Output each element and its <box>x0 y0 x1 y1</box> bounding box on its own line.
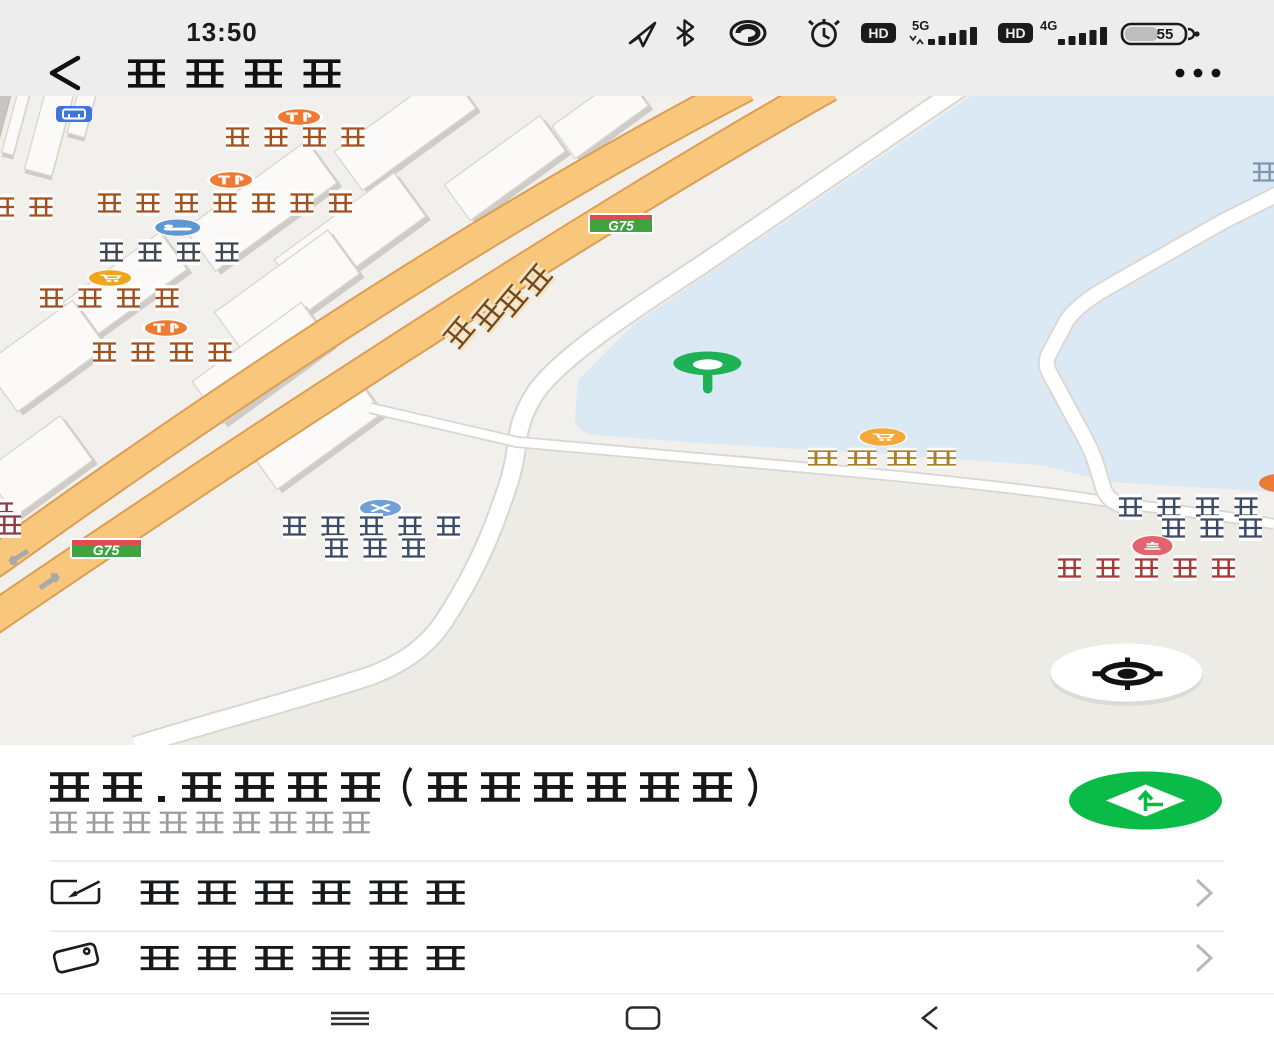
svg-text:4G: 4G <box>1040 18 1057 33</box>
svg-text:HD: HD <box>1005 25 1025 41</box>
svg-text:G75: G75 <box>93 542 120 558</box>
svg-text:13:50: 13:50 <box>186 17 258 47</box>
svg-text:5G: 5G <box>912 18 929 33</box>
svg-text:55: 55 <box>1157 26 1174 43</box>
svg-text:G75: G75 <box>608 219 634 234</box>
svg-text:HD: HD <box>868 25 888 41</box>
